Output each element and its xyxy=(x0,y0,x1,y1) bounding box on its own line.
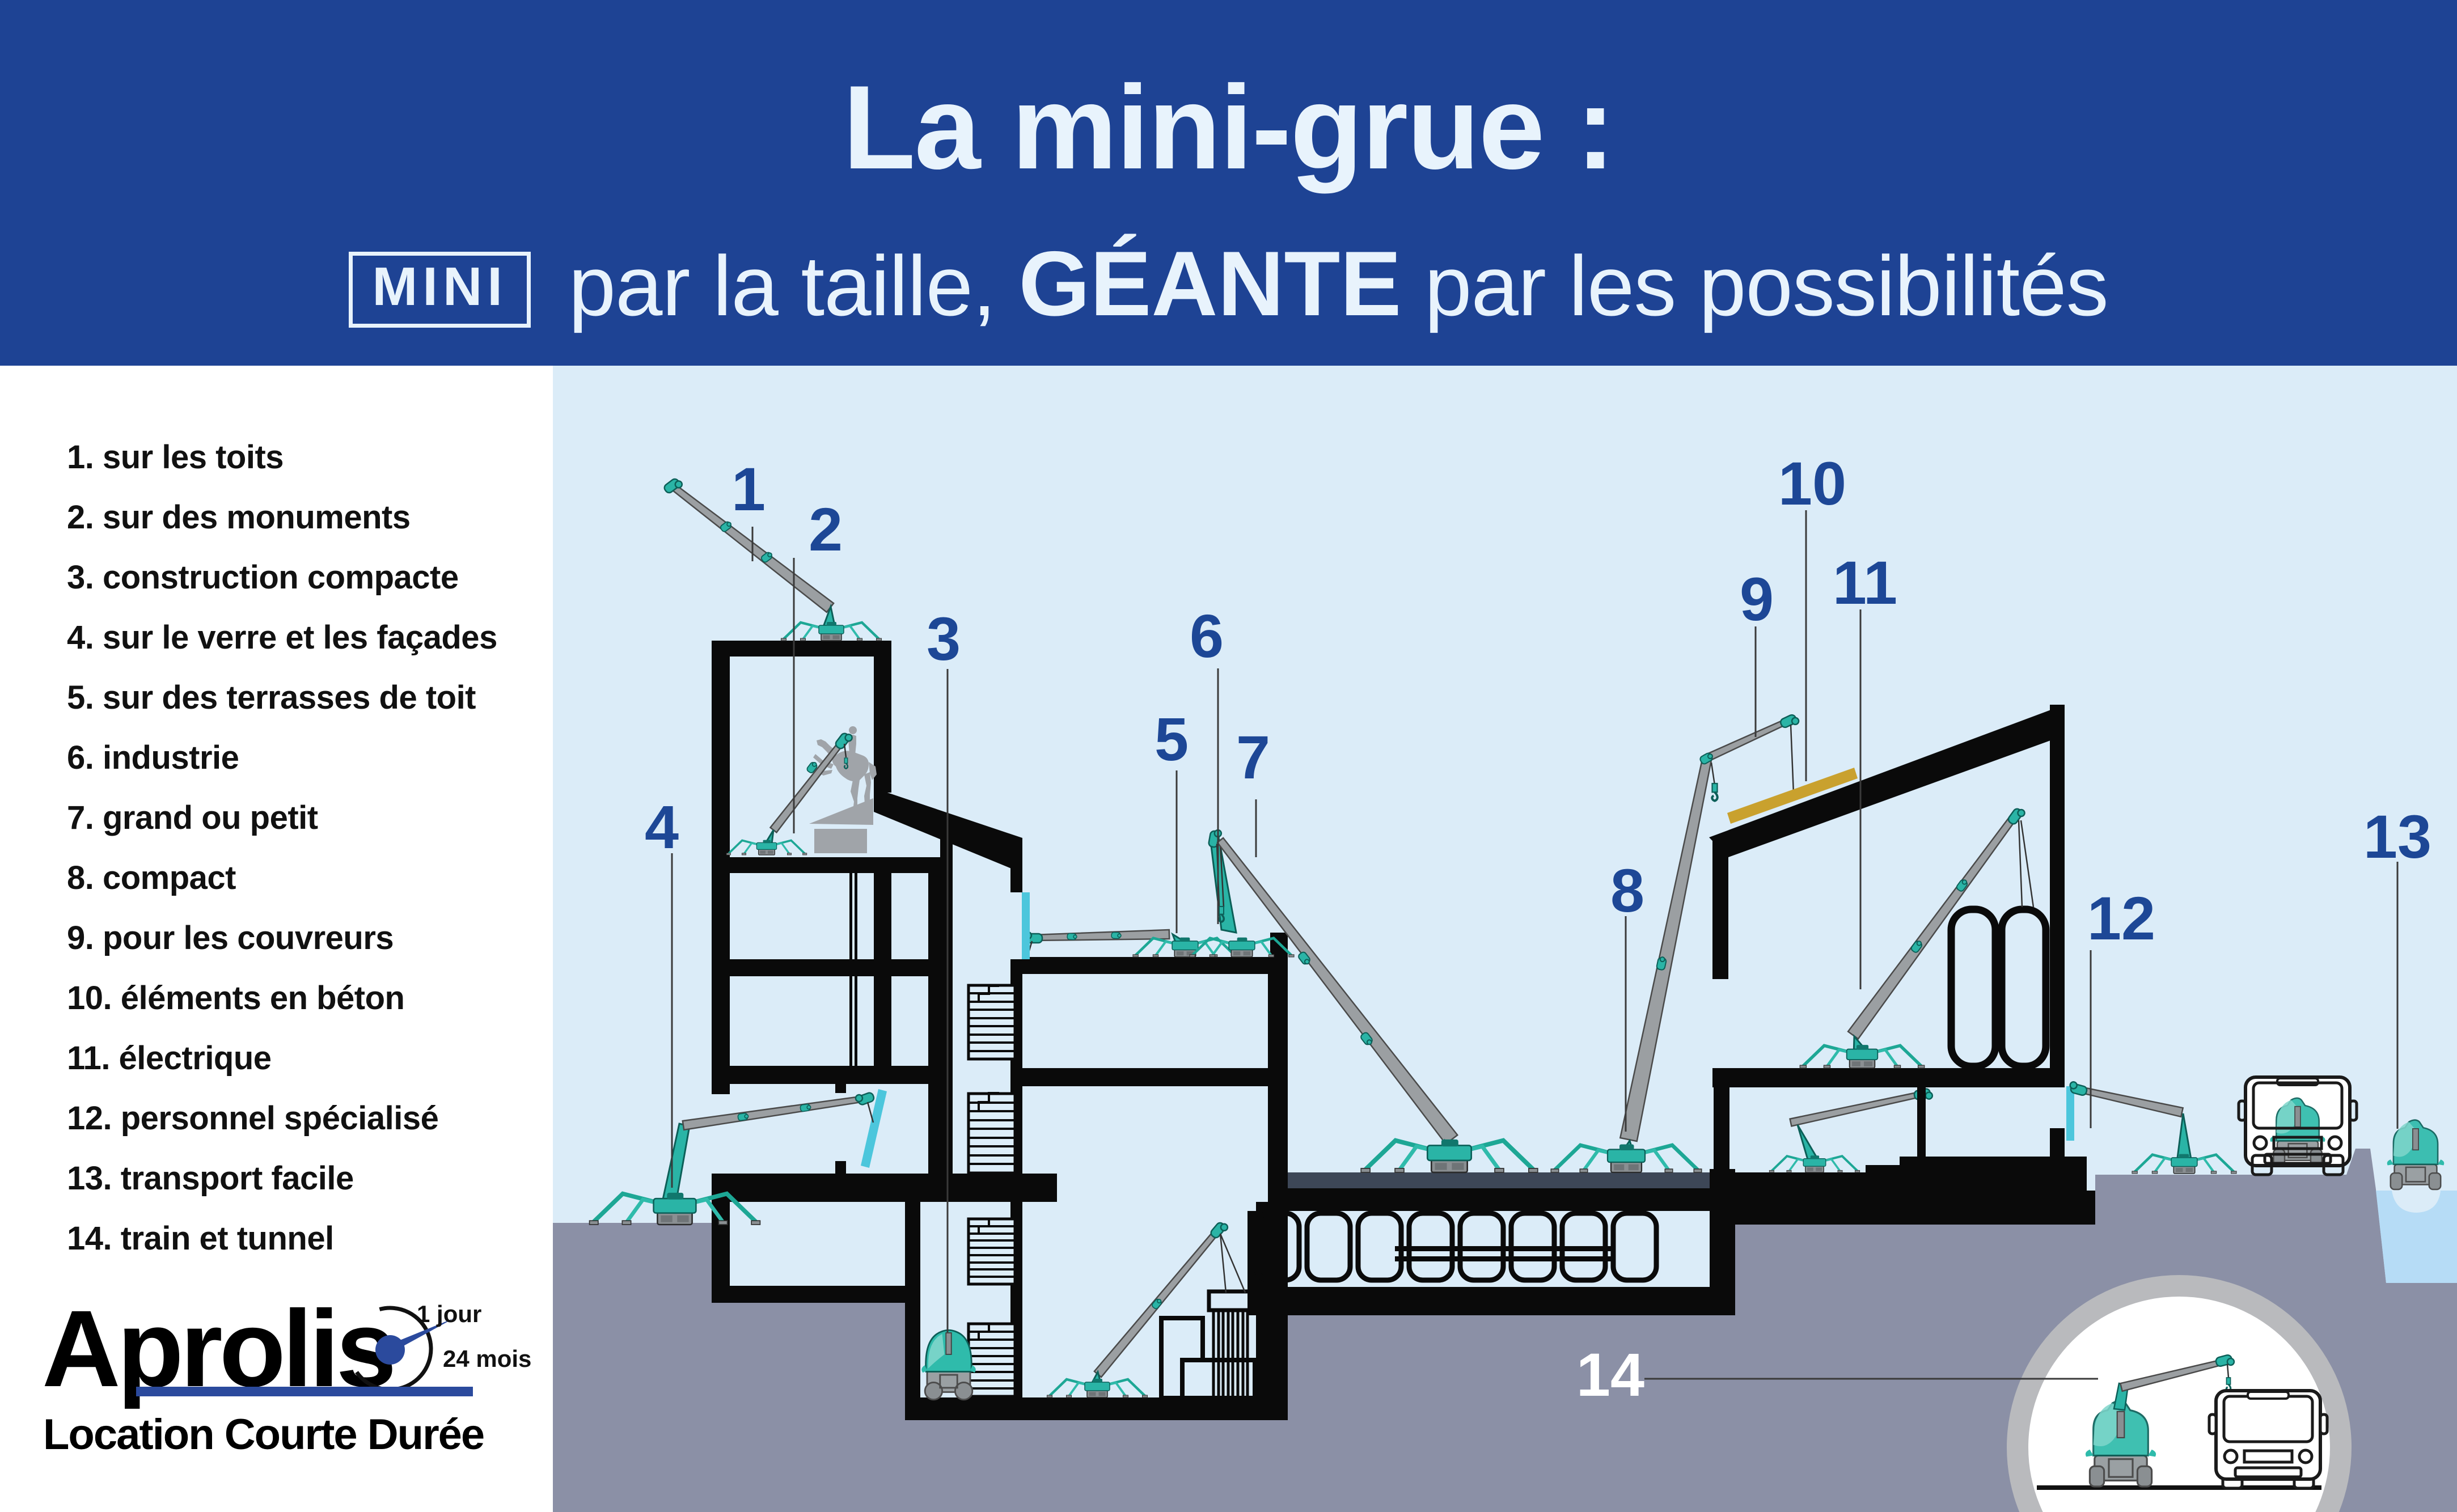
svg-text:3: 3 xyxy=(927,604,961,673)
svg-text:11: 11 xyxy=(1833,548,1897,617)
svg-text:4: 4 xyxy=(645,793,679,861)
svg-text:12: 12 xyxy=(2087,884,2155,952)
svg-text:13: 13 xyxy=(2363,802,2431,871)
svg-text:10: 10 xyxy=(1778,449,1846,518)
svg-text:5: 5 xyxy=(1155,705,1189,773)
svg-text:14: 14 xyxy=(1576,1340,1644,1409)
svg-text:1: 1 xyxy=(731,455,766,523)
svg-text:8: 8 xyxy=(1610,856,1644,925)
svg-text:2: 2 xyxy=(809,495,843,564)
svg-text:9: 9 xyxy=(1740,565,1774,633)
svg-text:6: 6 xyxy=(1190,602,1224,670)
svg-text:7: 7 xyxy=(1236,723,1270,791)
